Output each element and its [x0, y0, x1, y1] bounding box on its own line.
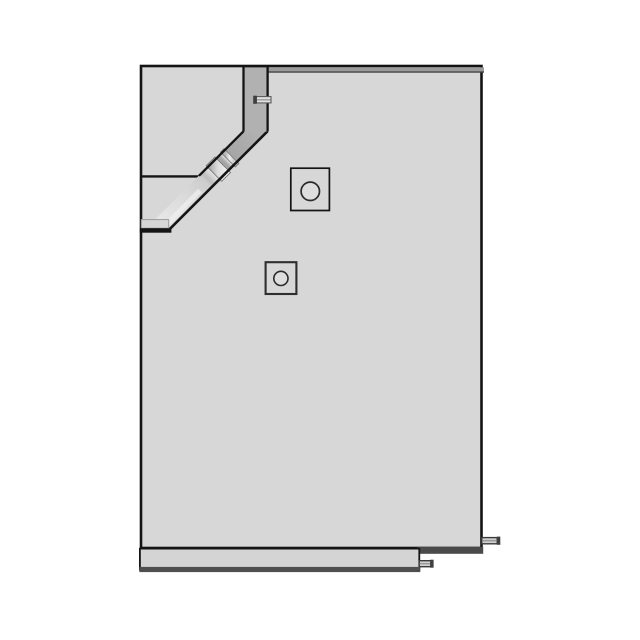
- right-peg-cap: [497, 537, 500, 545]
- panel-bottom-edge-band: [417, 547, 483, 554]
- duct-pin-cap: [253, 96, 257, 104]
- top-lip: [268, 67, 485, 71]
- top-lip-shadow-line: [268, 71, 485, 72]
- upper-port-circle-icon: [301, 182, 319, 200]
- main-panel: [141, 66, 482, 548]
- chute-mouth-edge: [140, 228, 172, 233]
- drawing-canvas: [0, 0, 640, 640]
- right-peg: [482, 537, 501, 545]
- lower-port-circle-icon: [274, 271, 288, 285]
- cad-part-drawing: [0, 0, 640, 640]
- base-peg-cap: [430, 560, 433, 568]
- base-bottom-edge: [139, 567, 420, 572]
- chute-mouth-ledge: [141, 220, 168, 229]
- duct-pin: [253, 96, 271, 104]
- base-peg: [419, 560, 433, 568]
- base-plinth: [140, 549, 419, 570]
